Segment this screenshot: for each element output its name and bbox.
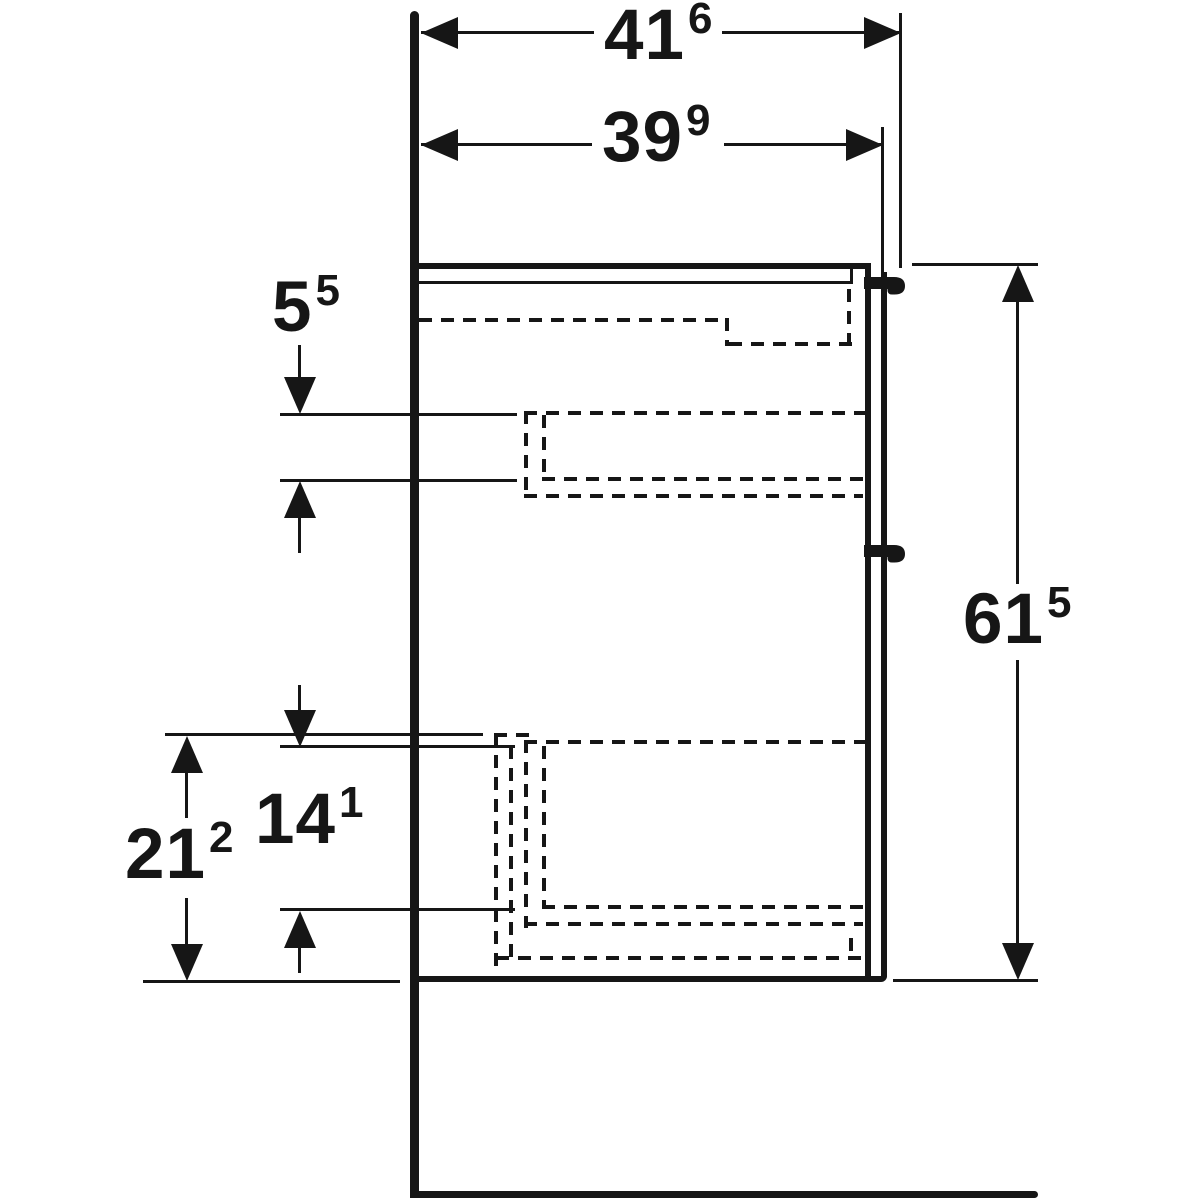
dim-615-superscript: 5 <box>1047 578 1071 627</box>
dim-55-value: 5 <box>272 268 313 347</box>
dim-55-stem-bottom <box>298 514 301 553</box>
upper-drawer-dashed-bottom-inner <box>542 477 863 481</box>
top-panel-front-edge-line <box>850 263 853 283</box>
dim-141-value: 14 <box>255 780 336 859</box>
dim-615-arrow-up <box>1002 265 1034 302</box>
basin-recess-dashed-right <box>847 289 851 346</box>
drawer-handle-top <box>864 277 906 297</box>
dim-416-arrow-left <box>421 17 458 49</box>
dim-399-superscript: 9 <box>686 96 710 145</box>
wall-line <box>410 11 419 1198</box>
lower-drawer-dashed-right-corner <box>849 938 853 960</box>
dim-141-arrow-up <box>284 911 316 948</box>
dim-55-arrow-down <box>284 377 316 414</box>
dim-615-arrow-down <box>1002 943 1034 980</box>
dim-416-extension-line <box>899 13 902 268</box>
dim-label-55: 55 <box>272 272 340 343</box>
dim-212-arrow-down <box>171 944 203 981</box>
dim-55-superscript: 5 <box>316 266 340 315</box>
dim-label-212: 212 <box>125 819 233 890</box>
dim-615-value: 61 <box>963 580 1044 659</box>
lower-drawer-dashed-bottom-mid <box>524 922 863 926</box>
dim-55-stem-top <box>298 345 301 381</box>
drawer-handle-bottom <box>864 545 906 565</box>
dim-55-arrow-up <box>284 481 316 518</box>
top-panel-underside-line <box>419 281 853 284</box>
dim-399-value: 39 <box>602 98 683 177</box>
dim-label-141: 141 <box>255 784 363 855</box>
lower-drawer-dashed-bottom-outer <box>496 956 863 960</box>
lower-drawer-dashed-top-stub <box>494 733 536 737</box>
dim-416-value: 41 <box>604 0 685 75</box>
dim-141-superscript: 1 <box>339 778 363 827</box>
dim-212-arrow-up <box>171 736 203 773</box>
dim-141-stem-bottom <box>298 945 301 973</box>
lower-drawer-dashed-left-outer <box>494 733 498 972</box>
dim-212-superscript: 2 <box>209 813 233 862</box>
upper-drawer-dashed-top <box>524 411 866 415</box>
dim-141-stem-top <box>298 685 301 713</box>
technical-drawing-canvas: 416 399 55 615 212 141 <box>0 0 1200 1200</box>
floor-line <box>410 1191 1038 1198</box>
lower-drawer-dashed-left-2 <box>509 746 513 960</box>
basin-recess-dashed-mid <box>729 342 852 346</box>
lower-drawer-dashed-bottom-inner <box>542 905 863 909</box>
dim-416-superscript: 6 <box>688 0 712 43</box>
dim-416-arrow-right <box>864 17 901 49</box>
lower-drawer-dashed-left-inner <box>542 746 546 909</box>
dim-399-arrow-left <box>421 129 458 161</box>
drawer-front-panel-line <box>881 272 887 980</box>
dim-399-arrow-right <box>846 129 883 161</box>
basin-recess-dashed-top <box>419 318 727 322</box>
dim-141-arrow-down <box>284 710 316 747</box>
dim-212-ref-line-top <box>165 733 483 736</box>
dim-212-stem-top <box>185 770 188 818</box>
lower-drawer-dashed-left-3 <box>524 740 528 928</box>
dim-615-line-upper <box>1016 299 1019 584</box>
cabinet-carcass-front-line <box>865 263 871 980</box>
dim-212-value: 21 <box>125 815 206 894</box>
upper-drawer-dashed-left-inner <box>542 415 546 481</box>
dim-212-stem-bottom <box>185 898 188 946</box>
dim-label-615: 615 <box>963 584 1071 655</box>
dim-label-416: 416 <box>604 0 712 71</box>
upper-drawer-dashed-bottom-outer <box>524 494 863 498</box>
dim-399-extension-line <box>881 127 884 272</box>
cabinet-top-line <box>419 263 871 269</box>
cabinet-bottom-line <box>419 976 887 982</box>
lower-drawer-dashed-top <box>524 740 866 744</box>
dim-label-399: 399 <box>602 102 710 173</box>
dim-615-line-lower <box>1016 660 1019 948</box>
upper-drawer-dashed-left-outer <box>524 411 528 499</box>
